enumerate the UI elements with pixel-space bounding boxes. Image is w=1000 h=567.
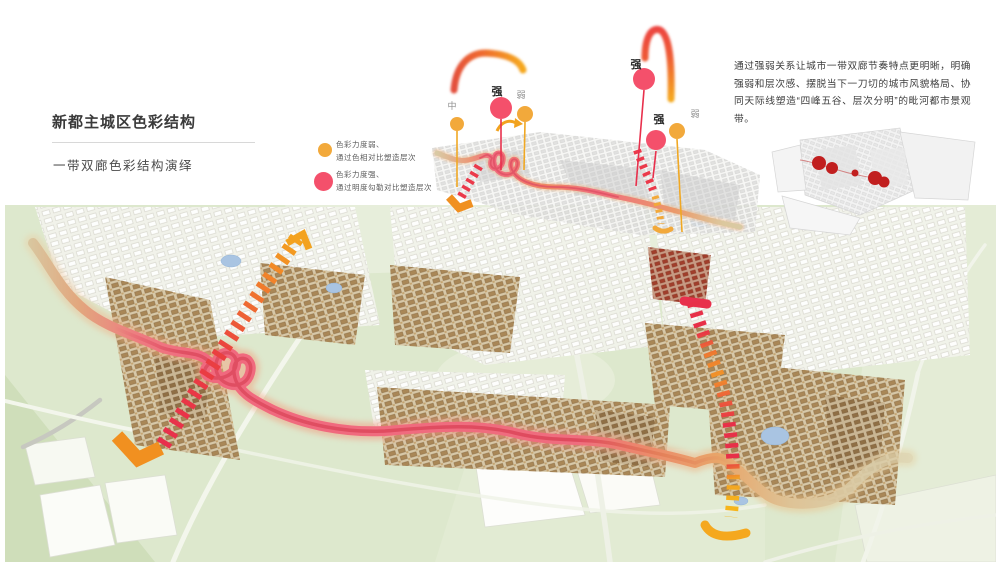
rhythm-arc-right: [645, 29, 671, 99]
pin-label-strong-left: 强: [492, 85, 503, 98]
rhythm-arcs: [454, 29, 671, 99]
pin-label-weak-left: 弱: [516, 90, 525, 100]
legend-weak-line1: 色彩力度弱、: [336, 138, 416, 151]
legend-strong-dot: [314, 172, 333, 191]
pin-label-weak-right: 弱: [690, 109, 699, 119]
legend-strong-label: 色彩力度强、 通过明度勾勒对比塑造层次: [336, 168, 432, 194]
thumbnail-node-dots: [812, 156, 890, 188]
mini-arrow-right-dashes: [637, 150, 653, 190]
legend-strong-line2: 通过明度勾勒对比塑造层次: [336, 181, 432, 194]
rhythm-arc-left: [454, 53, 523, 90]
mini-arrow-hook: [497, 121, 516, 131]
legend-weak-line2: 通过色相对比塑造层次: [336, 151, 416, 164]
description-paragraph: 通过强弱关系让城市一带双廊节奏特点更明晰，明确强弱和层次感、摆脱当下一刀切的城市…: [734, 58, 971, 128]
pin-weak-left: [517, 106, 533, 122]
pin-strong-left: [490, 97, 512, 119]
legend-strong-line1: 色彩力度强、: [336, 168, 432, 181]
legend-weak-label: 色彩力度弱、 通过色相对比塑造层次: [336, 138, 416, 164]
legend-weak-dot: [318, 143, 332, 157]
page-title: 新都主城区色彩结构: [52, 111, 196, 132]
title-divider: [52, 142, 255, 143]
dark-red-district: [648, 247, 711, 305]
pin-strong-right-top: [633, 68, 655, 90]
pin-label-strong-right-bottom: 强: [654, 113, 665, 126]
masterplan-map: [5, 205, 996, 562]
pin-label-medium-left: 中: [447, 100, 456, 111]
page-subtitle: 一带双廊色彩结构演绎: [53, 155, 193, 174]
mini-arrow-left-dashes: [461, 166, 479, 197]
pin-strong-right-bottom: [646, 130, 666, 150]
pin-weak-right: [669, 123, 685, 139]
pin-label-strong-right-top: 强: [631, 58, 642, 71]
thumbnail-route-line: [800, 160, 882, 180]
pin-medium-left: [450, 117, 464, 131]
mini-arrow-hook-head: [514, 118, 523, 128]
